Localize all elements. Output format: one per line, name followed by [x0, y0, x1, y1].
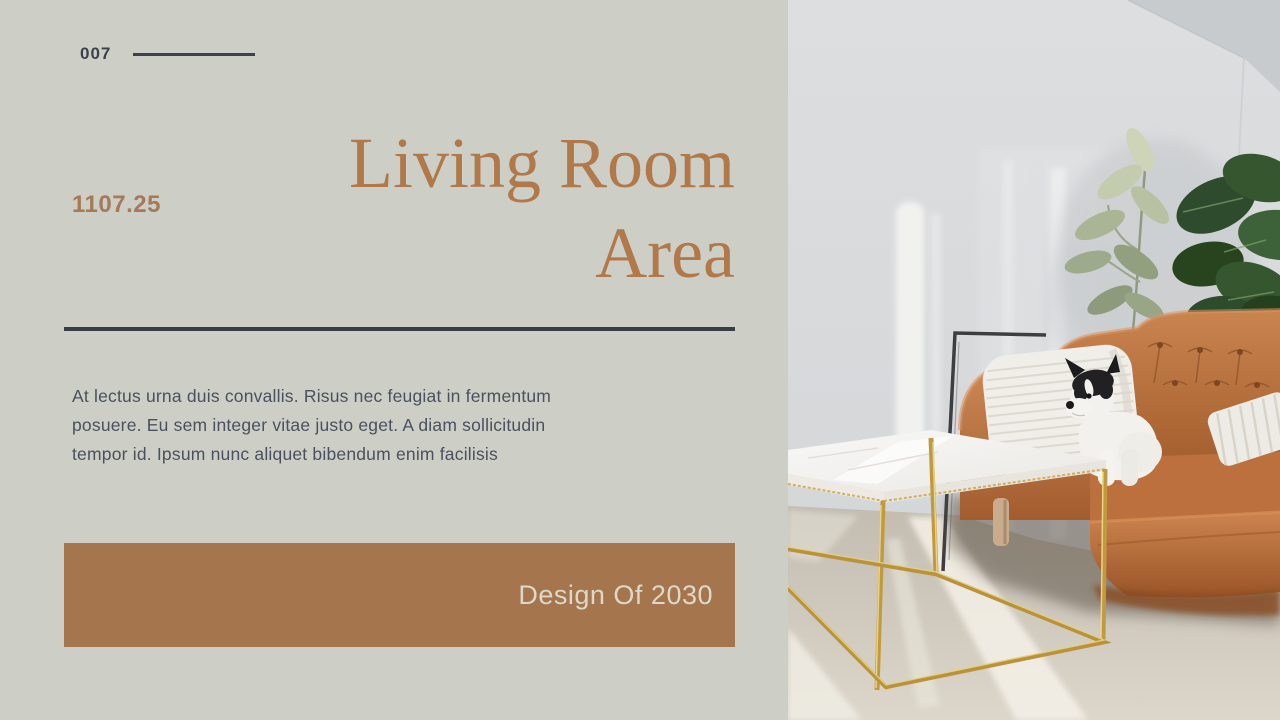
page-number-rule: [133, 53, 255, 56]
footer-banner: Design Of 2030: [64, 543, 735, 647]
title-divider: [64, 327, 735, 331]
sofa-leg: [993, 498, 1009, 546]
sofa-seat-front: [1090, 512, 1280, 615]
slide-title-line2: Area: [595, 213, 735, 293]
page-number-row: 007: [80, 44, 255, 64]
living-room-photo: [788, 0, 1280, 720]
presentation-slide: 007 1107.25 Living Room Area At lectus u…: [0, 0, 1280, 720]
body-paragraph: At lectus urna duis convallis. Risus nec…: [72, 382, 577, 469]
banner-label: Design Of 2030: [518, 580, 713, 611]
photo-illustration: [788, 0, 1280, 720]
slide-title-line1: Living Room: [349, 123, 735, 203]
page-number: 007: [80, 44, 111, 64]
slide-title: Living Room Area: [115, 118, 735, 298]
content-panel: 007 1107.25 Living Room Area At lectus u…: [0, 0, 788, 720]
